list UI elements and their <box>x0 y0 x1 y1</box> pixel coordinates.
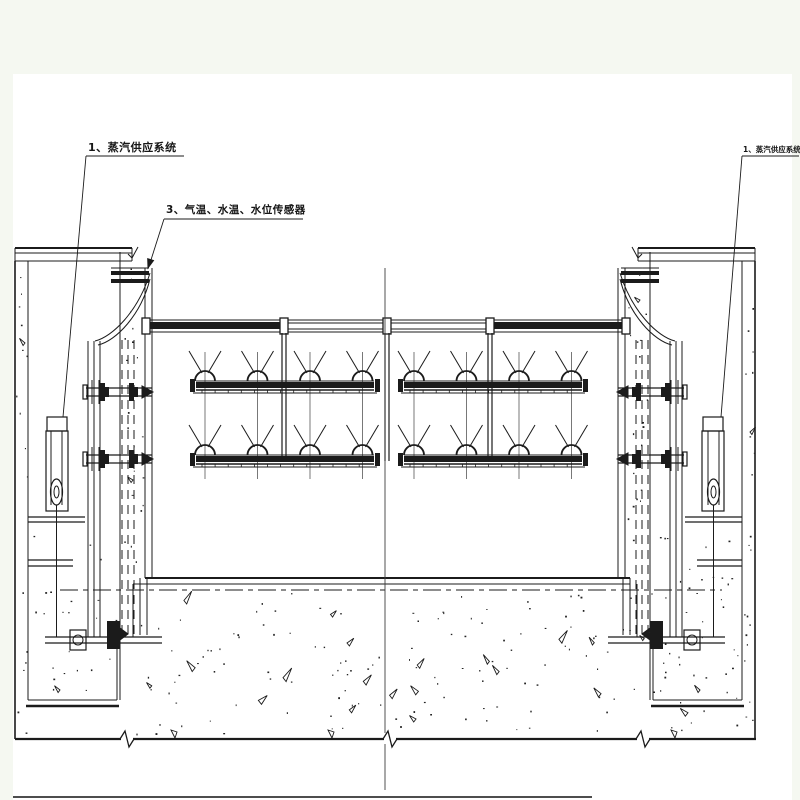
steam-supply-label-left: 1、蒸汽供应系统 <box>88 140 177 154</box>
sensor-label: 3、气温、水温、水位传感器 <box>166 203 306 216</box>
paper-sheet <box>13 74 792 800</box>
engineering-drawing: 1、蒸汽供应系统 3、气温、水温、水位传感器 1、蒸汽供应系统 <box>0 0 800 800</box>
steam-supply-label-right: 1、蒸汽供应系统 <box>743 144 800 154</box>
